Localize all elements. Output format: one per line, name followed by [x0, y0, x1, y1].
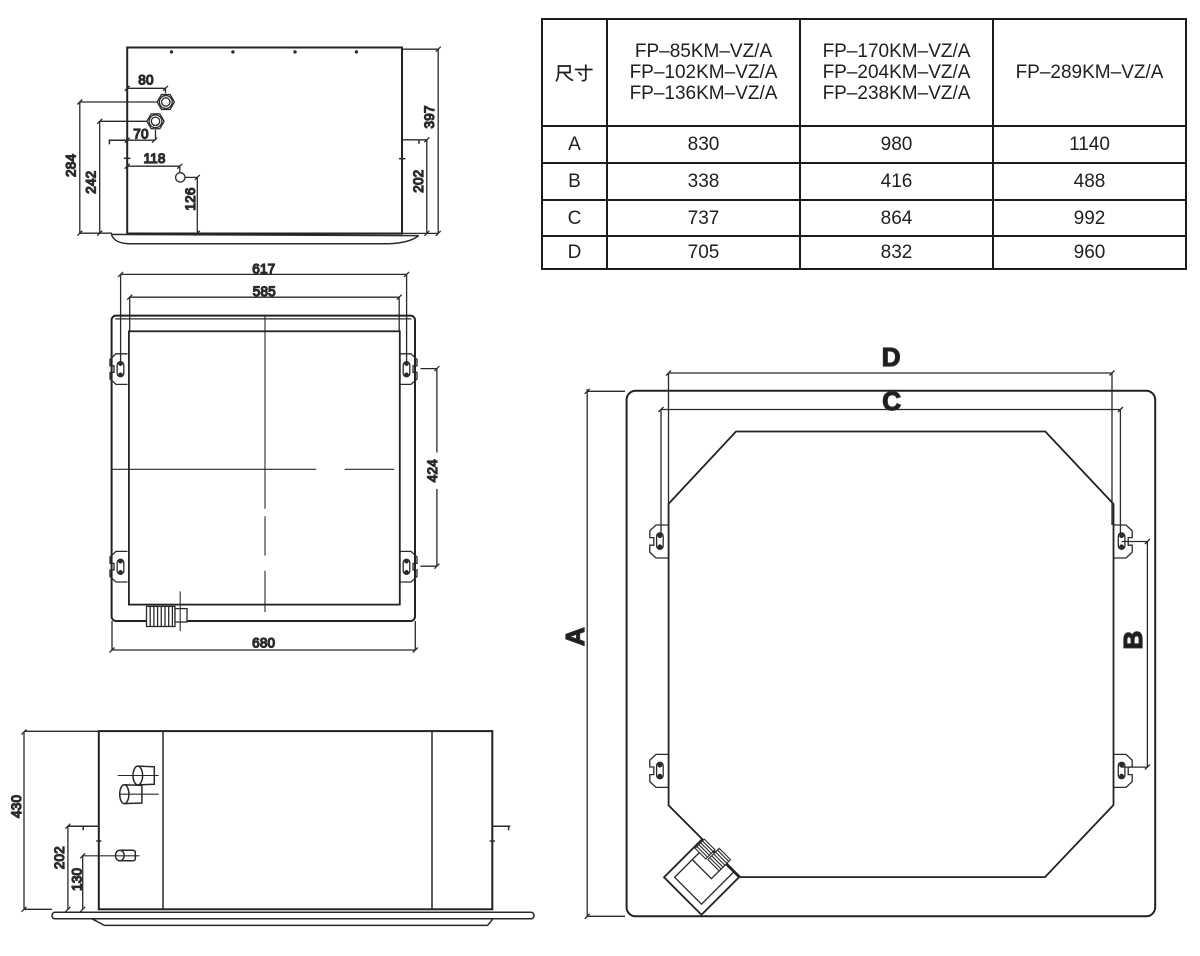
svg-text:202: 202 — [52, 846, 67, 869]
svg-text:C: C — [882, 386, 901, 416]
svg-text:B: B — [1118, 631, 1148, 650]
svg-text:D: D — [882, 342, 901, 372]
svg-text:617: 617 — [252, 262, 275, 277]
svg-text:202: 202 — [411, 170, 426, 193]
svg-text:430: 430 — [9, 795, 24, 818]
svg-text:242: 242 — [84, 171, 99, 194]
svg-text:585: 585 — [253, 284, 276, 299]
svg-text:118: 118 — [143, 151, 165, 166]
svg-text:397: 397 — [422, 105, 437, 128]
svg-text:680: 680 — [252, 635, 275, 650]
svg-text:70: 70 — [133, 126, 148, 141]
svg-text:130: 130 — [70, 868, 85, 891]
svg-text:80: 80 — [138, 72, 153, 87]
svg-text:126: 126 — [183, 187, 198, 210]
svg-text:A: A — [560, 627, 590, 646]
svg-text:424: 424 — [425, 459, 440, 482]
svg-text:284: 284 — [63, 154, 78, 177]
